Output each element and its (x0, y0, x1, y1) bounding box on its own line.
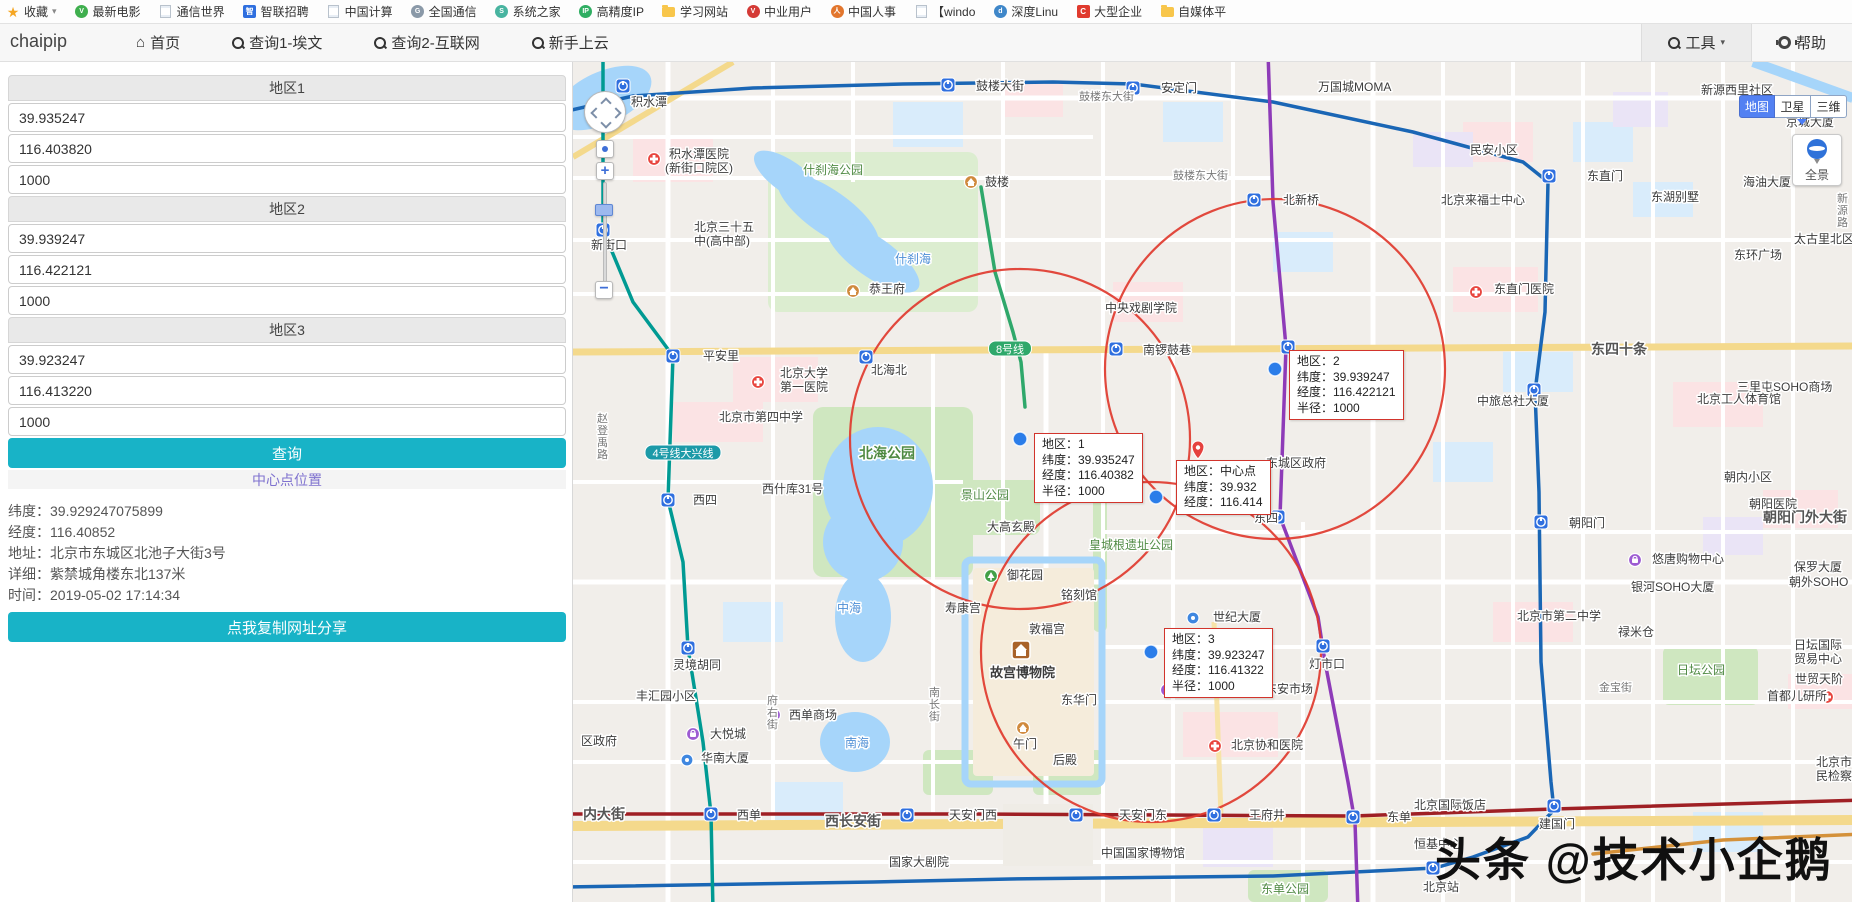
nav-item-label: 查询2-互联网 (391, 32, 479, 53)
map-label: 东直门医院 (1494, 281, 1554, 296)
map-label: 区政府 (581, 733, 617, 748)
bookmark-item[interactable]: 中国计算 (327, 3, 393, 20)
map-label: 东直门 (1587, 168, 1623, 183)
map-label: 东单 (1387, 810, 1411, 824)
map-label: 北京大学 (780, 365, 828, 380)
map-label: 中央戏剧学院 (1105, 300, 1177, 315)
folder-icon (662, 7, 675, 17)
map-label: 中国国家博物馆 (1101, 845, 1185, 860)
metro-icon[interactable] (1281, 340, 1295, 354)
bookmark-item[interactable]: IP高精度IP (579, 3, 644, 20)
map-type-switcher: 地图卫星三维 (1739, 95, 1847, 118)
info-纬度: 纬度：39.929247075899 (8, 501, 566, 522)
map-label: 北京国际饭店 (1414, 798, 1486, 812)
zoom-slider-handle[interactable] (595, 204, 613, 216)
map-label: 王府井 (1249, 807, 1285, 822)
hospital-icon[interactable] (648, 153, 661, 166)
map-label: 北海北 (871, 362, 907, 377)
shopping-icon[interactable] (1629, 554, 1642, 567)
bookmark-label: 深度Linu (1011, 3, 1058, 20)
region-2-header: 地区2 (8, 196, 566, 222)
nav-item-label: 查询1-埃文 (249, 32, 322, 53)
gear-icon (1778, 36, 1791, 49)
map-label: 王府井百货 (1182, 681, 1242, 696)
map-label: 平安里 (703, 348, 739, 363)
map-label: 丰汇园小区 (636, 689, 696, 703)
panorama-label: 全景 (1793, 166, 1841, 183)
hospital-icon[interactable] (1209, 740, 1222, 753)
bookmark-favicon-icon (662, 5, 676, 19)
nav-item-工具[interactable]: 工具▾ (1641, 24, 1752, 61)
map-label: 灵境胡同 (673, 657, 721, 672)
site-icon: d (994, 5, 1007, 18)
map-label: 西四 (693, 493, 717, 507)
map-label: 什刹海 (895, 251, 931, 266)
panorama-icon (1807, 139, 1827, 159)
bookmark-favicon-icon: d (993, 5, 1007, 19)
nav-item-label: 首页 (150, 32, 180, 53)
metro-icon[interactable] (941, 78, 955, 92)
bookmark-favicon-icon (327, 5, 341, 19)
pan-left-icon[interactable] (590, 107, 601, 118)
map-label: 第一医院 (780, 380, 828, 394)
bookmark-favicon-icon: IP (579, 5, 593, 19)
map-label: 民安小区 (1470, 142, 1518, 157)
search-icon (1668, 37, 1680, 49)
map-label: 海油大厦 (1743, 174, 1791, 189)
nav-item-查询1-埃文[interactable]: 查询1-埃文 (206, 24, 348, 61)
map-label: 鼓楼 (985, 174, 1009, 189)
map-label: 敦福宫 (1029, 621, 1065, 636)
map-label: 赵登禹路 (597, 411, 608, 461)
map-label: 朝阳门外大街 (1763, 509, 1847, 525)
map-label: 恭王府 (869, 281, 905, 296)
bookmark-favicon-icon: 智 (243, 5, 257, 19)
map-label: 鼓楼大街 (976, 78, 1024, 93)
nav-bar: chaipip ⌂首页查询1-埃文查询2-互联网新手上云 工具▾帮助 (0, 24, 1852, 62)
nav-item-label: 帮助 (1796, 32, 1826, 53)
map-label: 东华门 (1061, 692, 1097, 707)
site-icon: IP (579, 5, 592, 18)
hospital-icon[interactable] (1470, 286, 1483, 299)
subway-line-badge: 8号线 (989, 341, 1032, 356)
map-label: 西单商场 (789, 707, 837, 722)
bookmark-item[interactable]: ★收藏▾ (6, 3, 57, 20)
map-label: 东四 (1254, 511, 1278, 525)
map-type-caret-icon[interactable] (1797, 119, 1807, 125)
map-label: (新街口院区) (665, 160, 733, 175)
map-label: 朝阳门 (1569, 515, 1605, 530)
info-经度: 经度：116.40852 (8, 522, 566, 543)
bookmark-label: 自媒体平 (1178, 3, 1226, 20)
region-3-radius-input[interactable] (8, 407, 566, 436)
bookmark-favicon-icon (1160, 5, 1174, 19)
region-1-longitude-input[interactable] (8, 134, 566, 163)
map-canvas[interactable]: 8号线4号线大兴线积水潭鼓楼大街安定门万国城MOMA新源西里社区京城大厦鼓楼东大… (572, 62, 1852, 902)
map-label: 寿康宫 (945, 600, 981, 615)
bookmark-favicon-icon: V (746, 5, 760, 19)
attraction-icon[interactable] (965, 176, 978, 189)
shopping-icon[interactable] (1161, 684, 1174, 697)
map-label: 万国城MOMA (1318, 80, 1391, 94)
map-label: 皇城根遗址公园 (1089, 538, 1173, 552)
pan-right-icon[interactable] (610, 107, 621, 118)
map-label: 太古里北区 (1794, 231, 1852, 246)
map-label: 后殿 (1053, 753, 1077, 767)
map-label: 什刹海公园 (803, 162, 863, 177)
page-icon (160, 5, 171, 18)
map-label: 午门 (1013, 736, 1037, 751)
bookmark-item[interactable]: S系统之家 (495, 3, 561, 20)
metro-icon[interactable] (666, 349, 680, 363)
map-label: 朝阳医院 (1749, 497, 1797, 511)
nav-item-查询2-互联网[interactable]: 查询2-互联网 (348, 24, 505, 61)
map-label: 北京市第四中学 (719, 409, 803, 424)
map-type-地图[interactable]: 地图 (1739, 95, 1775, 118)
bookmark-item[interactable]: 【windo (914, 3, 975, 20)
map-label: 悠唐购物中心 (1652, 551, 1724, 566)
map-pan-control[interactable] (584, 91, 626, 133)
caret-down-icon: ▾ (1720, 37, 1725, 48)
map-label: 北京来福士中心 (1441, 192, 1525, 207)
region-groups: 地区1地区2地区3 (8, 75, 566, 436)
map-label: 西长安街 (825, 813, 881, 829)
map-base: 8号线4号线大兴线积水潭鼓楼大街安定门万国城MOMA新源西里社区京城大厦鼓楼东大… (573, 62, 1852, 902)
bookmark-label: 中国计算 (345, 3, 393, 20)
home-icon: ⌂ (136, 34, 145, 51)
bookmark-favicon-icon: V (75, 5, 89, 19)
bookmark-label: 高精度IP (597, 3, 644, 20)
bookmark-label: 全国通信 (429, 3, 477, 20)
region-2-radius-input[interactable] (8, 286, 566, 315)
map-label: 朝外SOHO (1789, 575, 1848, 589)
map-label: 华南大厦 (701, 750, 749, 765)
bookmark-favicon-icon (914, 5, 928, 19)
bookmark-favicon-icon: G (411, 5, 425, 19)
map-label: 内大街 (583, 806, 625, 822)
shopping-icon[interactable] (1242, 683, 1255, 696)
zoom-slider-track[interactable] (603, 182, 607, 285)
zoom-in-button[interactable]: + (596, 162, 614, 180)
map-label: 北京协和医院 (1231, 737, 1303, 752)
site-icon: V (75, 5, 88, 18)
bookmark-item[interactable]: 人中国人事 (830, 3, 896, 20)
watermark: 头条 @技术小企鹅 (1435, 824, 1833, 890)
map-label: 西什库31号 (762, 481, 823, 496)
attraction-icon[interactable] (847, 285, 860, 298)
metro-icon[interactable] (1542, 169, 1556, 183)
bookmark-item[interactable]: V中业用户 (746, 3, 812, 20)
metro-icon[interactable] (1247, 193, 1261, 207)
metro-icon[interactable] (1547, 799, 1561, 813)
bookmark-favicon-icon: ★ (6, 5, 20, 19)
locate-control[interactable] (596, 140, 614, 158)
bookmark-label: 中业用户 (764, 3, 812, 20)
info-时间: 时间：2019-05-02 17:14:34 (8, 585, 566, 606)
bookmark-label: 最新电影 (93, 3, 141, 20)
map-label: 日坛公园 (1677, 663, 1725, 677)
bookmark-item[interactable]: 智智联招聘 (243, 3, 309, 20)
caret-down-icon[interactable]: ▾ (52, 6, 57, 17)
attraction-icon[interactable] (1017, 722, 1030, 735)
map-label: 积水潭医院 (669, 147, 729, 161)
zoom-out-button[interactable]: − (595, 281, 613, 299)
nav-item-label: 新手上云 (549, 32, 609, 53)
search-icon (232, 37, 244, 49)
map-label: 贸易中心 (1794, 651, 1842, 666)
metro-icon[interactable] (704, 807, 718, 821)
region-1-radius-input[interactable] (8, 165, 566, 194)
bookmark-favicon-icon: 人 (830, 5, 844, 19)
map-label: 铭刻馆 (1061, 587, 1097, 602)
page-icon (328, 5, 339, 18)
map-label: 北京工人体育馆 (1697, 391, 1781, 406)
site-icon: S (495, 5, 508, 18)
search-icon (374, 37, 386, 49)
map-label: 天安门西 (949, 807, 997, 822)
map-label: 大悦城 (710, 727, 746, 741)
map-label: 北京三十五 (694, 220, 754, 234)
bookmark-item[interactable]: V最新电影 (75, 3, 141, 20)
panorama-control[interactable]: 全景 (1792, 134, 1842, 186)
info-地址: 地址：北京市东城区北池子大街3号 (8, 543, 566, 564)
map-label: 国家大剧院 (889, 854, 949, 869)
region-1-marker[interactable] (1013, 432, 1027, 446)
bookmark-item[interactable]: d深度Linu (993, 3, 1058, 20)
map-label: 保罗大厦 (1794, 560, 1842, 574)
nav-item-新手上云[interactable]: 新手上云 (506, 24, 635, 61)
map-label: 东安市场 (1265, 681, 1313, 696)
bookmark-item[interactable]: G全国通信 (411, 3, 477, 20)
map-label: 南长街 (929, 686, 940, 723)
map-label: 金宝街 (1599, 680, 1632, 694)
map-label: 御花园 (1007, 567, 1043, 582)
bookmark-label: 通信世界 (177, 3, 225, 20)
map-label: 民检察院 (1816, 768, 1852, 783)
map-label: 东湖别墅 (1651, 189, 1699, 204)
region-2-longitude-input[interactable] (8, 255, 566, 284)
map-label: 西单 (737, 808, 761, 822)
poi-icon[interactable] (681, 754, 693, 766)
map-label: 中旅总社大厦 (1477, 393, 1549, 408)
poi-icon[interactable] (1187, 612, 1199, 624)
metro-icon[interactable] (900, 808, 914, 822)
hospital-icon[interactable] (752, 376, 765, 389)
map-label: 禄米仓 (1618, 624, 1654, 639)
map-label: 中海 (837, 600, 861, 615)
metro-icon[interactable] (681, 641, 695, 655)
map-label: 东环广场 (1734, 248, 1782, 262)
map-label: 故宫博物院 (990, 665, 1055, 680)
bookmark-favicon-icon: C (1076, 5, 1090, 19)
map-label: 中(高中部) (694, 233, 750, 248)
bookmark-favicon-icon: S (495, 5, 509, 19)
bookmark-label: 大型企业 (1094, 3, 1142, 20)
map-label: 东单公园 (1261, 882, 1309, 896)
bookmark-item[interactable]: 自媒体平 (1160, 3, 1226, 20)
map-label: 世贸天阶 (1795, 672, 1843, 686)
nav-item-label: 工具 (1685, 32, 1715, 53)
copy-share-button[interactable]: 点我复制网址分享 (8, 612, 566, 642)
bookmark-item[interactable]: C大型企业 (1076, 3, 1142, 20)
query-panel: 地区1地区2地区3 查询 中心点位置 纬度：39.929247075899经度：… (8, 75, 566, 642)
map-type-三维[interactable]: 三维 (1811, 95, 1847, 118)
svg-text:8号线: 8号线 (996, 342, 1024, 356)
center-point-bar: 中心点位置 (8, 470, 566, 489)
bookmark-label: 中国人事 (848, 3, 896, 20)
center-point-link[interactable]: 中心点位置 (252, 472, 322, 488)
map-label: 首都儿研所 (1767, 689, 1827, 703)
bookmark-label: 系统之家 (513, 3, 561, 20)
map-label: 朝内小区 (1724, 470, 1772, 484)
palace-museum-icon[interactable] (1012, 641, 1030, 659)
region-3-header: 地区3 (8, 317, 566, 343)
metro-icon[interactable] (859, 350, 873, 364)
bookmarks-bar: ★收藏▾V最新电影通信世界智智联招聘中国计算G全国通信S系统之家IP高精度IP学… (0, 0, 1852, 24)
bookmark-item[interactable]: 学习网站 (662, 3, 728, 20)
metro-icon[interactable] (616, 79, 630, 93)
site-icon: 智 (243, 5, 256, 18)
map-label: 北海公园 (859, 445, 915, 461)
nav-right: 工具▾帮助 (1641, 24, 1852, 61)
map-label: 东城区政府 (1266, 455, 1326, 470)
query-button[interactable]: 查询 (8, 438, 566, 468)
map-label: 南锣鼓巷 (1143, 342, 1191, 357)
sidebar: 地区1地区2地区3 查询 中心点位置 纬度：39.929247075899经度：… (0, 62, 572, 902)
region-3-latitude-input[interactable] (8, 345, 566, 374)
metro-icon[interactable] (1109, 342, 1123, 356)
region-3-marker[interactable] (1144, 645, 1158, 659)
bookmark-label: 智联招聘 (261, 3, 309, 20)
map-label: 大高玄殿 (987, 519, 1035, 534)
pan-up-icon[interactable] (600, 97, 611, 108)
page-icon (916, 5, 927, 18)
map-label: 北京市人 (1816, 754, 1852, 769)
map-label: 安定门 (1161, 80, 1197, 95)
bookmark-label: 学习网站 (680, 3, 728, 20)
map-label: 银河SOHO大厦 (1631, 580, 1714, 594)
map-label: 天安门东 (1119, 807, 1167, 822)
metro-icon[interactable] (1346, 810, 1360, 824)
map-label: 东四十条 (1591, 341, 1648, 357)
search-icon (532, 37, 544, 49)
map-type-卫星[interactable]: 卫星 (1775, 95, 1811, 118)
metro-icon[interactable] (1069, 808, 1083, 822)
map-label: 新街口 (591, 237, 627, 252)
metro-icon[interactable] (1316, 639, 1330, 653)
metro-icon[interactable] (661, 493, 675, 507)
bookmark-favicon-icon (159, 5, 173, 19)
info-详细: 详细：紫禁城角楼东北137米 (8, 564, 566, 585)
brand-logo[interactable]: chaipip (0, 24, 110, 61)
bookmark-item[interactable]: 通信世界 (159, 3, 225, 20)
map-label: 灯市口 (1309, 656, 1345, 671)
site-icon: G (411, 5, 424, 18)
center-point-info: 纬度：39.929247075899经度：116.40852地址：北京市东城区北… (8, 501, 566, 606)
map-label: 南海 (845, 735, 869, 750)
map-label: 北京市第二中学 (1517, 608, 1601, 623)
metro-icon[interactable] (1207, 808, 1221, 822)
site-icon: 人 (831, 5, 844, 18)
map-label: 鼓楼东大街 (1173, 168, 1228, 182)
shopping-icon[interactable] (687, 728, 700, 741)
region-1-header: 地区1 (8, 75, 566, 101)
region-2-marker[interactable] (1268, 362, 1282, 376)
site-icon: C (1077, 5, 1090, 18)
metro-icon[interactable] (1534, 515, 1548, 529)
map-label: 积水潭 (631, 95, 667, 109)
region-1-latitude-input[interactable] (8, 103, 566, 132)
map-label: 北新桥 (1283, 192, 1319, 207)
bookmark-label: 【windo (932, 3, 975, 20)
nav-items: ⌂首页查询1-埃文查询2-互联网新手上云 (110, 24, 635, 61)
pan-down-icon[interactable] (600, 117, 611, 128)
map-label: 鼓楼东大街 (1079, 89, 1134, 103)
subway-line-badge: 4号线大兴线 (645, 445, 721, 460)
map-label: 世纪大厦 (1213, 610, 1261, 624)
center-marker[interactable] (1149, 490, 1163, 504)
map-label: 日坛国际 (1794, 638, 1842, 652)
map-label: 府右街 (767, 693, 778, 731)
region-3-longitude-input[interactable] (8, 376, 566, 405)
nav-item-帮助[interactable]: 帮助 (1752, 24, 1852, 61)
region-2-latitude-input[interactable] (8, 224, 566, 253)
map-label: 景山公园 (961, 488, 1009, 502)
nav-item-首页[interactable]: ⌂首页 (110, 24, 206, 61)
bookmark-label: 收藏 (24, 3, 48, 20)
folder-icon (1161, 7, 1174, 17)
park-icon[interactable] (985, 570, 998, 583)
map-label: 新源路 (1837, 191, 1848, 229)
svg-text:4号线大兴线: 4号线大兴线 (652, 446, 713, 460)
site-icon: V (747, 5, 760, 18)
